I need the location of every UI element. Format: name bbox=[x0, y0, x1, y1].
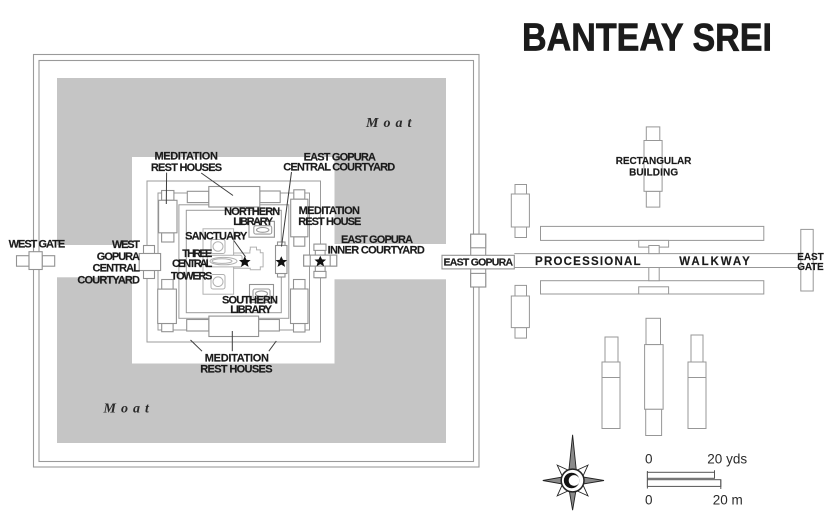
svg-text:CENTRAL: CENTRAL bbox=[93, 263, 141, 275]
svg-text:MEDITATION: MEDITATION bbox=[205, 352, 269, 364]
svg-text:TOWERS: TOWERS bbox=[171, 270, 212, 282]
svg-text:CENTRAL: CENTRAL bbox=[172, 258, 213, 270]
svg-text:20 m: 20 m bbox=[713, 492, 743, 507]
svg-text:WEST: WEST bbox=[112, 239, 140, 251]
svg-text:LIBRARY: LIBRARY bbox=[233, 216, 273, 228]
svg-text:INNER COURTYARD: INNER COURTYARD bbox=[328, 245, 425, 257]
svg-text:COURTYARD: COURTYARD bbox=[77, 274, 140, 286]
svg-text:GATE: GATE bbox=[797, 262, 824, 273]
svg-text:0: 0 bbox=[645, 452, 653, 467]
svg-text:PROCESSIONAL: PROCESSIONAL bbox=[535, 256, 641, 268]
svg-text:LIBRARY: LIBRARY bbox=[230, 304, 272, 316]
svg-text:GOPURA: GOPURA bbox=[97, 251, 140, 263]
svg-text:REST HOUSES: REST HOUSES bbox=[200, 364, 272, 376]
svg-text:EAST GOPURA: EAST GOPURA bbox=[444, 256, 514, 268]
svg-text:MEDITATION: MEDITATION bbox=[154, 150, 218, 162]
svg-text:20 yds: 20 yds bbox=[707, 452, 747, 467]
svg-text:REST HOUSES: REST HOUSES bbox=[151, 162, 222, 174]
svg-text:BUILDING: BUILDING bbox=[629, 168, 678, 179]
svg-text:SANCTUARY: SANCTUARY bbox=[185, 230, 248, 242]
svg-text:CENTRAL COURTYARD: CENTRAL COURTYARD bbox=[283, 162, 395, 174]
svg-text:0: 0 bbox=[645, 492, 653, 507]
svg-text:BANTEAY SREI: BANTEAY SREI bbox=[522, 17, 772, 60]
svg-text:REST HOUSE: REST HOUSE bbox=[298, 216, 361, 228]
svg-text:WEST GATE: WEST GATE bbox=[9, 239, 66, 251]
svg-text:Moat: Moat bbox=[103, 401, 156, 416]
svg-text:RECTANGULAR: RECTANGULAR bbox=[616, 156, 692, 167]
svg-text:Moat: Moat bbox=[365, 116, 418, 131]
